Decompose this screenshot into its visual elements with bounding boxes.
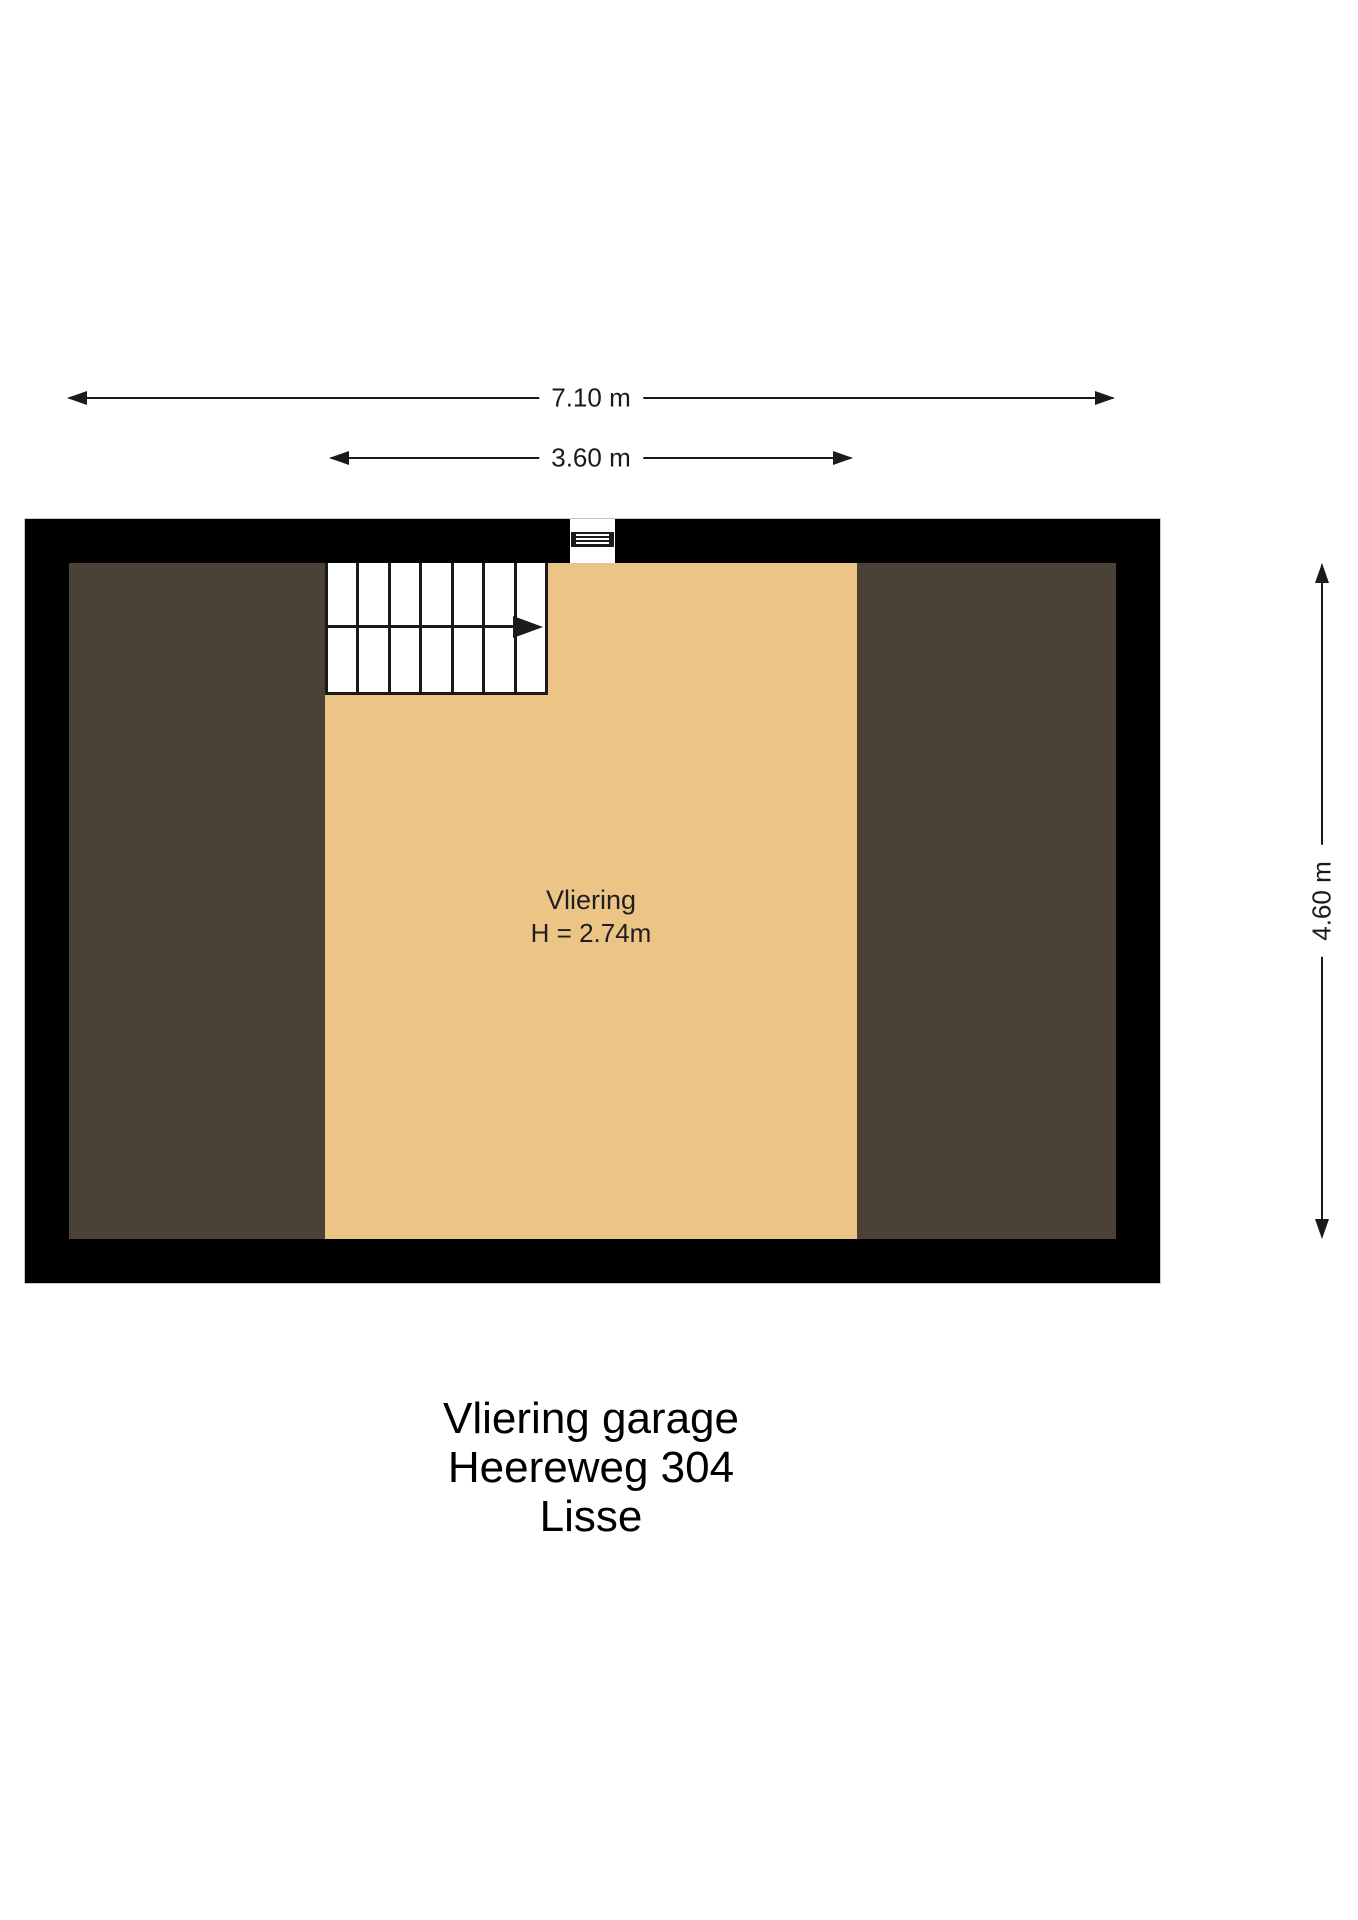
arrowhead-up-icon [1315, 563, 1329, 583]
stair-direction-line [325, 625, 515, 628]
arrowhead-left-icon [67, 391, 87, 405]
stair-tread [482, 563, 513, 692]
floorplan-page: { "dimensions": { "top_width": { "label"… [0, 0, 1358, 1920]
arrowhead-right-icon [1095, 391, 1115, 405]
dimension-overall-width: 7.10 m [67, 391, 1115, 405]
stair-tread [356, 563, 387, 692]
dimension-label-overall-width: 7.10 m [539, 383, 643, 414]
dimension-label-side-height: 4.60 m [1307, 845, 1338, 957]
staircase-treads [325, 563, 545, 692]
dimension-inner-width: 3.60 m [329, 451, 853, 465]
stair-direction-arrow-icon [513, 616, 543, 638]
wall-opening [570, 519, 615, 563]
arrowhead-down-icon [1315, 1219, 1329, 1239]
plan-title-line2: Heereweg 304 [443, 1443, 739, 1492]
stair-tread [419, 563, 450, 692]
hatch-window-icon [571, 532, 614, 547]
plan-title-line3: Lisse [443, 1492, 739, 1541]
room-label: Vliering H = 2.74m [531, 884, 652, 950]
plan-title-line1: Vliering garage [443, 1394, 739, 1443]
stair-tread [325, 563, 356, 692]
stair-tread [451, 563, 482, 692]
room-height-label: H = 2.74m [531, 917, 652, 950]
staircase [325, 563, 548, 695]
dimension-label-inner-width: 3.60 m [539, 443, 643, 474]
left-roof-storage-area [69, 563, 325, 1239]
right-roof-storage-area [857, 563, 1116, 1239]
plan-title: Vliering garage Heereweg 304 Lisse [443, 1394, 739, 1541]
dimension-side-height: 4.60 m [1314, 563, 1330, 1239]
stair-tread [388, 563, 419, 692]
arrowhead-left-icon [329, 451, 349, 465]
arrowhead-right-icon [833, 451, 853, 465]
room-name-label: Vliering [531, 884, 652, 917]
